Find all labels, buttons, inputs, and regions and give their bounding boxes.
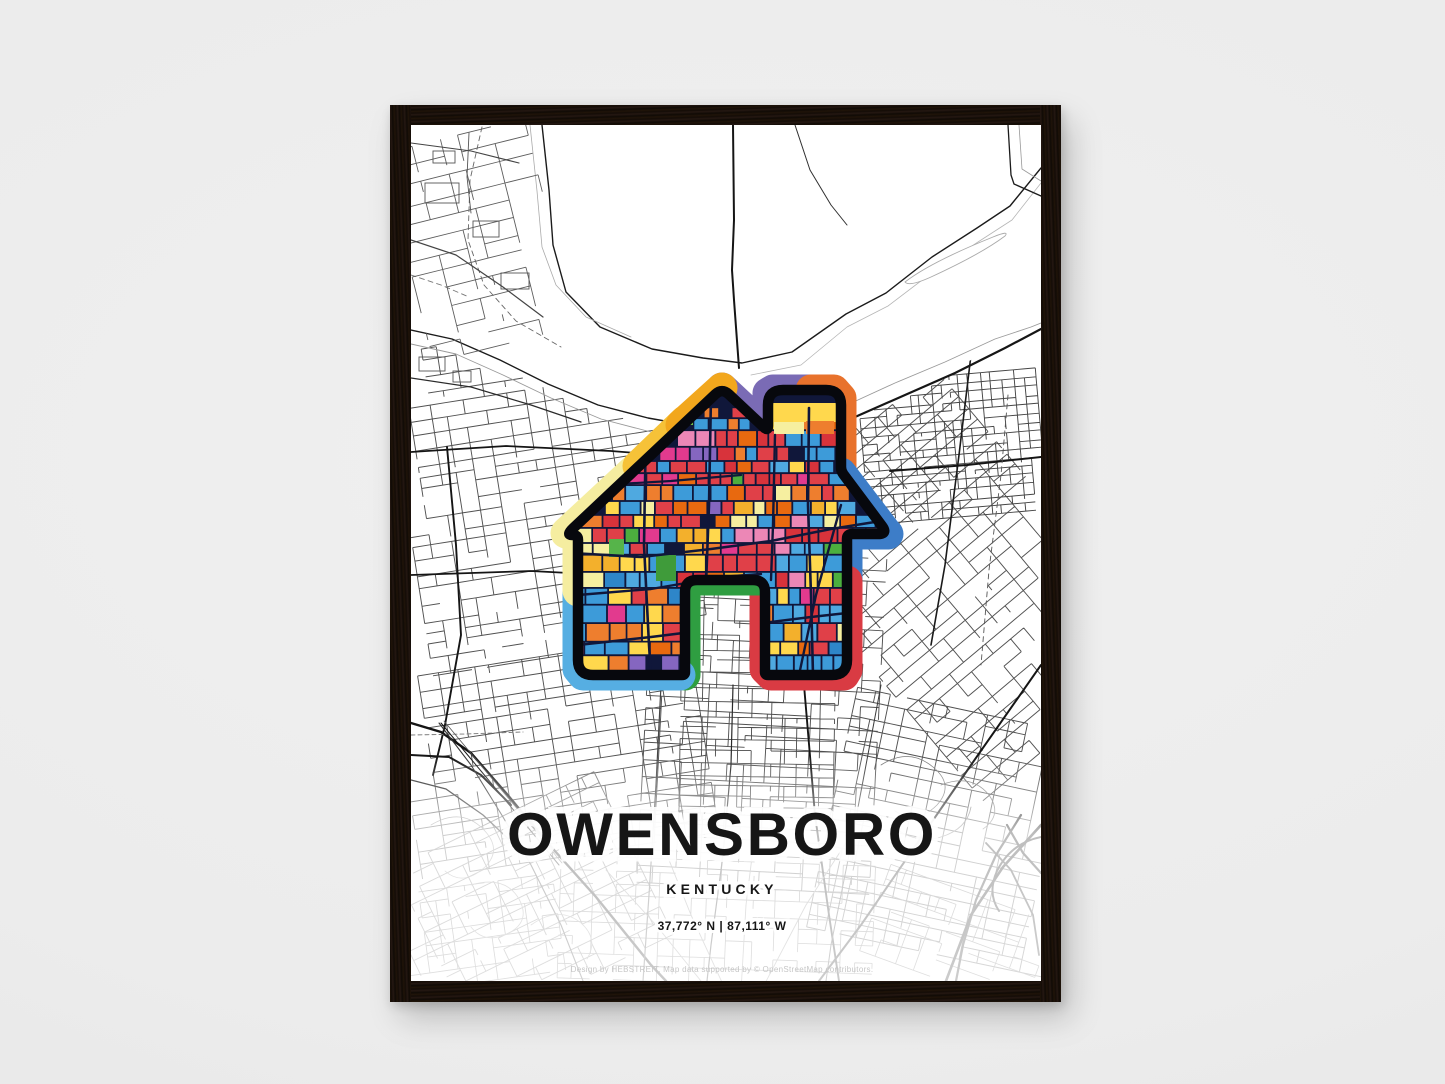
svg-text:37,772° N | 87,111° W: 37,772° N | 87,111° W — [658, 919, 787, 933]
svg-text:Design by HEBSTREIT, Map data: Design by HEBSTREIT, Map data supported … — [571, 965, 874, 974]
svg-text:KENTUCKY: KENTUCKY — [666, 881, 777, 897]
svg-text:OWENSBORO: OWENSBORO — [507, 801, 937, 868]
